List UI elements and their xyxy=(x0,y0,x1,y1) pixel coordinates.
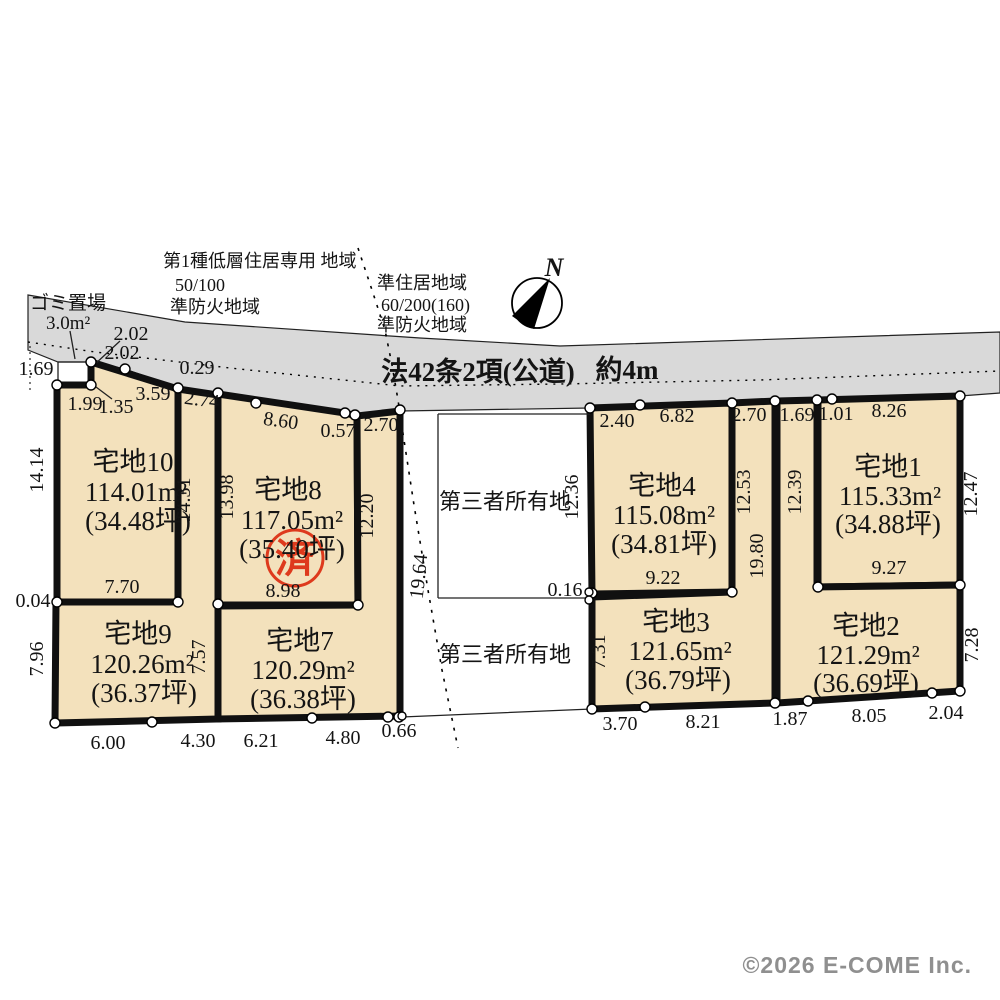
dim-label: 14.14 xyxy=(26,448,48,493)
plot9-area: 120.26m² xyxy=(90,649,193,679)
dim-label: 14.31 xyxy=(173,478,195,523)
third-party-lower-label: 第三者所有地 xyxy=(439,642,571,667)
plot7-tsubo: (36.38坪) xyxy=(250,684,356,714)
dim-label: 2.02 xyxy=(105,342,140,364)
plot1-area: 115.33m² xyxy=(839,481,941,511)
dim-label: 2.70 xyxy=(364,414,399,436)
plot3-tsubo: (36.79坪) xyxy=(625,665,731,695)
dim-label: 0.16 xyxy=(548,579,583,601)
dim-label: 7.28 xyxy=(961,628,983,663)
dim-label: 8.98 xyxy=(266,580,301,602)
dim-label: 12.39 xyxy=(784,470,806,515)
plot4-name: 宅地4 xyxy=(628,471,696,501)
zoning-right-line1: 準住居地域 xyxy=(377,273,467,293)
plot3-name: 宅地3 xyxy=(642,607,710,637)
dim-label: 4.80 xyxy=(326,727,361,749)
plot1-tsubo: (34.88坪) xyxy=(835,509,941,539)
dim-label: 7.31 xyxy=(588,635,610,670)
plot4-tsubo: (34.81坪) xyxy=(611,529,717,559)
dim-label: 2.40 xyxy=(600,410,635,432)
zoning-left-line3: 準防火地域 xyxy=(170,297,260,317)
plot4-area: 115.08m² xyxy=(613,500,715,530)
dim-label: 12.36 xyxy=(561,475,583,520)
dim-label: 12.47 xyxy=(960,472,982,517)
dim-label: 6.82 xyxy=(660,405,695,427)
plot10-name: 宅地10 xyxy=(93,447,174,477)
dim-label: 3.70 xyxy=(603,713,638,735)
dim-label: 1.99 xyxy=(68,393,103,415)
dim-label: 7.96 xyxy=(26,642,48,677)
plot2-area: 121.29m² xyxy=(816,640,919,670)
dim-label: 1.01 xyxy=(819,403,854,425)
garbage-label: ゴミ置場 xyxy=(30,292,106,314)
plot8-name: 宅地8 xyxy=(254,475,322,505)
dim-label: 19.64 xyxy=(406,553,433,600)
compass: N xyxy=(512,253,565,329)
plot10-area: 114.01m² xyxy=(85,477,187,507)
dim-label: 3.59 xyxy=(136,383,171,405)
dim-label: 7.70 xyxy=(105,576,140,598)
dim-label: 6.00 xyxy=(91,732,126,754)
dim-label: 4.30 xyxy=(181,730,216,752)
dim-label: 0.57 xyxy=(321,420,356,442)
compass-north-label: N xyxy=(544,253,565,282)
plot7-area: 120.29m² xyxy=(251,655,354,685)
dim-label: 7.57 xyxy=(188,640,210,675)
dim-label: 1.35 xyxy=(99,396,134,418)
dim-label: 2.70 xyxy=(732,404,767,426)
dim-label: 6.21 xyxy=(244,730,279,752)
dim-label: 8.05 xyxy=(852,705,887,727)
plot8-tsubo: (35.40坪) xyxy=(239,534,345,564)
dim-label: 1.87 xyxy=(773,708,808,730)
dim-label: 0.29 xyxy=(180,357,215,379)
dim-label: 0.66 xyxy=(382,720,417,742)
dim-label: 1.69 xyxy=(19,358,54,380)
dim-label: 8.21 xyxy=(686,711,721,733)
plot1-name: 宅地1 xyxy=(854,452,922,482)
lot-subdivision-diagram: N 済 第1種低層住居専用 地域 50/100 準防火地域 準住居地域 xyxy=(0,0,1000,1000)
zoning-left-line1: 第1種低層住居専用 地域 xyxy=(163,251,357,271)
dim-label: 2.04 xyxy=(929,702,964,724)
dim-label: 1.69 xyxy=(780,404,815,426)
dim-label: 9.27 xyxy=(872,557,907,579)
dim-label: 8.26 xyxy=(872,400,907,422)
copyright-text: ©2026 E-COME Inc. xyxy=(742,952,972,978)
third-party-upper-label: 第三者所有地 xyxy=(439,489,571,514)
dim-label: 13.98 xyxy=(216,475,238,520)
zoning-right-line3: 準防火地域 xyxy=(377,315,467,335)
dim-label: 9.22 xyxy=(646,567,681,589)
zoning-left-line2: 50/100 xyxy=(175,275,225,295)
plot8-area: 117.05m² xyxy=(241,505,343,535)
road-name-label: 法42条2項(公道) xyxy=(381,356,574,387)
zoning-right-line2: 60/200(160) xyxy=(381,295,470,316)
road-width-label: 約4m xyxy=(596,354,659,385)
dim-label: 12.53 xyxy=(733,470,755,515)
plot9-name: 宅地9 xyxy=(104,619,172,649)
plot7-name: 宅地7 xyxy=(266,626,334,656)
dim-label: 0.04 xyxy=(16,590,51,612)
garbage-area: 3.0m² xyxy=(46,313,91,334)
dim-label: 12.20 xyxy=(356,494,378,539)
plot9-tsubo: (36.37坪) xyxy=(91,678,197,708)
plot3-area: 121.65m² xyxy=(628,636,731,666)
plot2-tsubo: (36.69坪) xyxy=(813,668,919,698)
dim-label: 19.80 xyxy=(746,534,768,579)
plot2-name: 宅地2 xyxy=(832,611,900,641)
